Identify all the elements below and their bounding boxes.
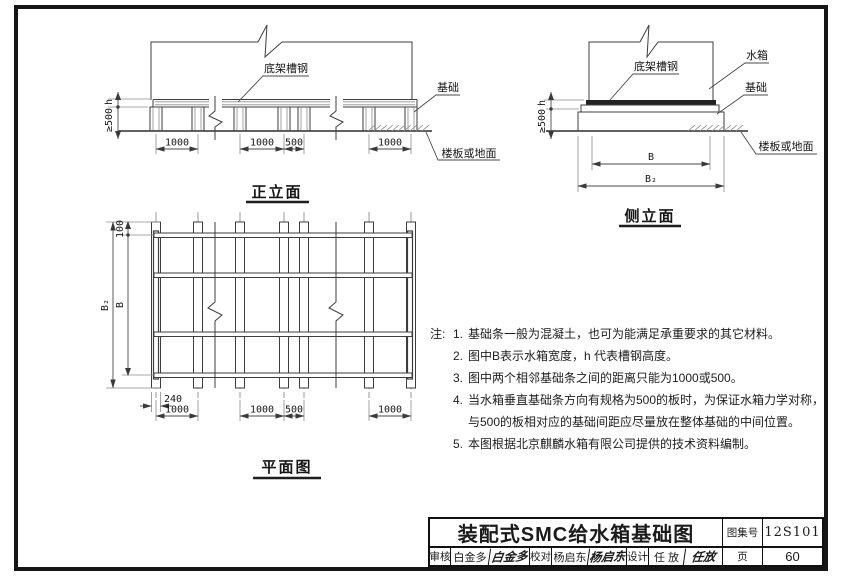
dim-label-500: ≥500 — [537, 109, 548, 133]
break-symbol — [258, 25, 282, 57]
dim-label-B2: B₂ — [645, 174, 657, 185]
atlas-number-label: 图集号 — [722, 519, 762, 546]
notes-section: 注: 1. 基础条一般为混凝土，也可为能满足承重要求的其它材料。 2. 图中B表… — [430, 323, 826, 455]
note-item: 4. 当水箱垂直基础条方向有规格为500的板时，为保证水箱力学对称， — [430, 389, 826, 411]
front-elevation-drawing: h ≥500 1000 1000 500 1000 底架槽钢 基础 楼板或地面 — [104, 25, 500, 202]
note-number: 3. — [453, 367, 463, 389]
plan-view-drawing: B₂ 100 B 240 1000 1000 — [100, 212, 416, 478]
designer-name: 任 放 — [648, 548, 684, 565]
note-text: 当水箱垂直基础条方向有规格为500的板时，为保证水箱力学对称， — [468, 393, 824, 407]
note-text: 基础条一般为混凝土，也可为能满足承重要求的其它材料。 — [468, 327, 780, 341]
break-symbol — [329, 222, 343, 388]
drawing-title: 装配式SMC给水箱基础图 — [430, 519, 722, 546]
dim-label-B2: B₂ — [100, 299, 111, 311]
note-text: 图中两个相邻基础条之间的距离只能为1000或500。 — [468, 371, 743, 385]
side-elevation-title: 侧立面 — [624, 207, 675, 225]
note-text: 图中B表示水箱宽度，h 代表槽钢高度。 — [468, 349, 678, 363]
reviewer-name: 白金多 — [450, 548, 489, 565]
dim-label: 1000 — [378, 138, 402, 149]
floor-label: 楼板或地面 — [759, 139, 814, 153]
note-number: 4. — [453, 389, 463, 411]
notes-heading: 注: — [430, 323, 445, 345]
bearing-plate — [581, 105, 719, 112]
front-bottom-dimensions: 1000 1000 500 1000 — [156, 134, 411, 154]
plan-bottom-dimensions: 240 1000 1000 500 1000 — [140, 392, 411, 421]
dim-label-B: B — [648, 152, 654, 163]
leader-line — [610, 74, 679, 100]
side-width-dimensions: B B₂ — [578, 136, 724, 192]
leader-line — [414, 95, 460, 112]
dim-label-h: h — [537, 100, 548, 106]
checker-label: 校对 — [529, 548, 551, 565]
note-item: 2. 图中B表示水箱宽度，h 代表槽钢高度。 — [430, 345, 826, 367]
dim-label-240: 240 — [164, 394, 182, 405]
note-item: 注: 1. 基础条一般为混凝土，也可为能满足承重要求的其它材料。 — [430, 323, 826, 345]
drawing-sheet: h ≥500 1000 1000 500 1000 底架槽钢 基础 楼板或地面 — [0, 0, 842, 582]
foundation-label: 基础 — [437, 81, 459, 94]
channel-steel-section — [586, 100, 716, 105]
drawing-canvas: h ≥500 1000 1000 500 1000 底架槽钢 基础 楼板或地面 — [0, 0, 842, 582]
note-text: 本图根据北京麒麟水箱有限公司提供的技术资料编制。 — [468, 437, 756, 451]
break-symbol — [208, 222, 222, 388]
note-number: 5. — [453, 433, 463, 455]
checker-signature: 杨启东 — [587, 547, 628, 565]
dim-label-h: h — [104, 99, 115, 105]
dim-label-100: 100 — [115, 220, 126, 238]
title-block-row-2: 审核 白金多 白金多 校对 杨启东 杨启东 设计 任 放 任放 页 60 — [430, 546, 822, 565]
front-left-dimension: h ≥500 — [104, 92, 150, 139]
foundation-section — [578, 112, 724, 131]
checker-name: 杨启东 — [551, 548, 588, 565]
dim-label: 1000 — [165, 138, 189, 149]
dim-label-500: ≥500 — [104, 108, 115, 132]
tank-label: 水箱 — [746, 48, 768, 62]
dim-label: 1000 — [250, 405, 274, 416]
leader-line — [238, 76, 309, 102]
front-elevation-title: 正立面 — [251, 183, 302, 201]
dim-label: 1000 — [250, 138, 274, 149]
atlas-number-value: 12S101 — [762, 519, 822, 546]
dim-label: 1000 — [165, 405, 189, 416]
note-number: 2. — [453, 345, 463, 367]
side-elevation-drawing: h ≥500 B B₂ 底架槽钢 水箱 基础 楼板或地面 侧立面 — [537, 25, 817, 226]
dim-label: 500 — [285, 138, 303, 149]
dim-label: 500 — [285, 405, 303, 416]
break-symbol — [640, 25, 658, 57]
page-label: 页 — [722, 548, 762, 565]
reviewer-label: 审核 — [430, 548, 450, 565]
designer-signature: 任放 — [683, 547, 724, 565]
foundation-label: 基础 — [745, 81, 767, 94]
channel-steel-label: 底架槽钢 — [264, 61, 308, 75]
dim-label: 1000 — [378, 405, 402, 416]
channel-band — [153, 100, 417, 108]
floor-label: 楼板或地面 — [442, 146, 497, 160]
leader-line — [717, 95, 768, 114]
foundation-strips-plan — [152, 222, 416, 388]
designer-label: 设计 — [626, 548, 648, 565]
title-block: 装配式SMC给水箱基础图 图集号 12S101 审核 白金多 白金多 校对 杨启… — [428, 517, 824, 567]
note-item: 5. 本图根据北京麒麟水箱有限公司提供的技术资料编制。 — [430, 433, 826, 455]
ground-hatch — [368, 125, 429, 131]
note-item: 3. 图中两个相邻基础条之间的距离只能为1000或500。 — [430, 367, 826, 389]
channel-steel-label: 底架槽钢 — [634, 59, 678, 73]
foundation-strips — [150, 107, 417, 131]
note-text-continued: 与500的板相对应的基础间距应尽量放在整体基础的中间位置。 — [430, 411, 826, 433]
dim-label-B: B — [115, 302, 126, 308]
title-block-row-1: 装配式SMC给水箱基础图 图集号 12S101 — [430, 519, 822, 546]
note-number: 1. — [453, 323, 463, 345]
side-left-dimension: h ≥500 — [537, 92, 584, 139]
plan-view-title: 平面图 — [261, 459, 312, 476]
reviewer-signature: 白金多 — [488, 547, 531, 565]
page-number: 60 — [762, 548, 822, 565]
